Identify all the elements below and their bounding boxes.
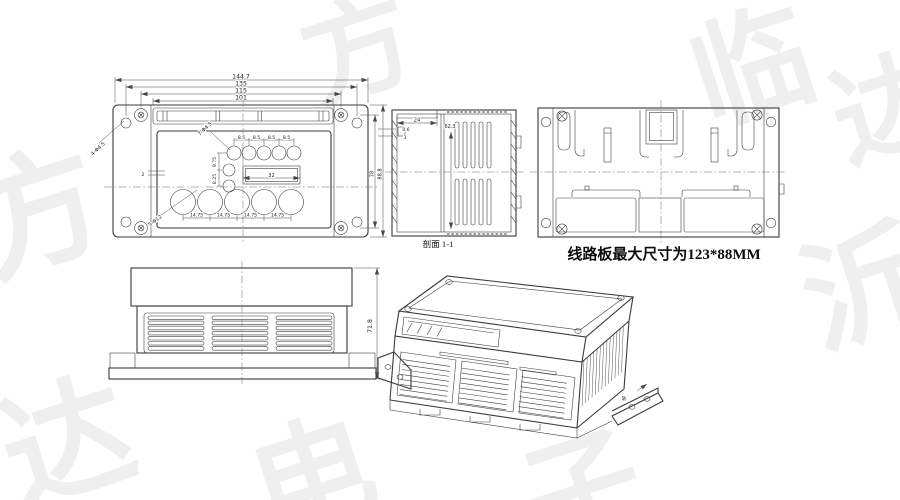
dim-0-6: 0.6 xyxy=(402,127,409,133)
large-hole-callout: 5-Φ12 xyxy=(147,214,163,228)
screw-boss xyxy=(557,111,567,121)
drawing-sheet: 临 沂 方 达 电 子 方 达 xyxy=(0,0,900,500)
dim-8-25: 8.25 xyxy=(212,174,218,184)
pitch-14-75: 14.75 xyxy=(190,213,203,219)
corner-screw-hole xyxy=(135,222,148,235)
section-label: 剖面 1-1 xyxy=(423,238,454,249)
screw-boss xyxy=(557,224,567,234)
pitch-8-5: 8.5 xyxy=(238,135,245,141)
dim-78: 78 xyxy=(370,171,376,177)
pitch-14-75: 14.75 xyxy=(244,213,257,219)
bottom-view: 线路板最大尺寸为123*88MM xyxy=(530,100,787,263)
dim-2: 2 xyxy=(142,172,145,178)
dim-32: 32 xyxy=(268,173,274,179)
corner-hole-callout: 4-Φ4.5 xyxy=(90,141,107,157)
enclosure-technical-drawing: 144.7 135 115 101 4-Φ4.5 8.5 8.5 8.5 8.5… xyxy=(0,0,900,500)
corner-screw-hole xyxy=(335,222,348,235)
pcb-size-note: 线路板最大尺寸为123*88MM xyxy=(567,245,760,263)
front-view: 71.8 xyxy=(109,261,382,384)
dim-115: 115 xyxy=(235,88,247,95)
isometric-view: 轨 xyxy=(378,276,663,438)
section-view: 24 0.6 3 62.3 剖面 1-1 xyxy=(378,110,524,249)
pitch-8-5: 8.5 xyxy=(268,135,275,141)
pitch-14-75: 14.75 xyxy=(271,213,284,219)
corner-screw-hole xyxy=(335,109,348,122)
pitch-8-5: 8.5 xyxy=(283,135,290,141)
dim-62-3: 62.3 xyxy=(444,124,455,130)
top-plan-view: 144.7 135 115 101 4-Φ4.5 8.5 8.5 8.5 8.5… xyxy=(90,74,387,244)
dim-71-8: 71.8 xyxy=(367,319,374,333)
pitch-8-5: 8.5 xyxy=(253,135,260,141)
dim-24: 24 xyxy=(414,118,420,124)
dim-3: 3 xyxy=(404,135,407,141)
screw-boss xyxy=(752,224,762,234)
pitch-14-75: 14.75 xyxy=(217,213,230,219)
corner-screw-hole xyxy=(135,109,148,122)
din-rail-note: 轨 xyxy=(622,395,627,402)
dim-144-7: 144.7 xyxy=(232,74,250,81)
dim-88-8: 88.8 xyxy=(378,168,384,179)
dim-135: 135 xyxy=(235,81,247,88)
small-hole-callout: 7-Φ4.5 xyxy=(197,121,214,137)
dim-101: 101 xyxy=(235,95,247,102)
dim-9-75: 9.75 xyxy=(212,157,218,167)
